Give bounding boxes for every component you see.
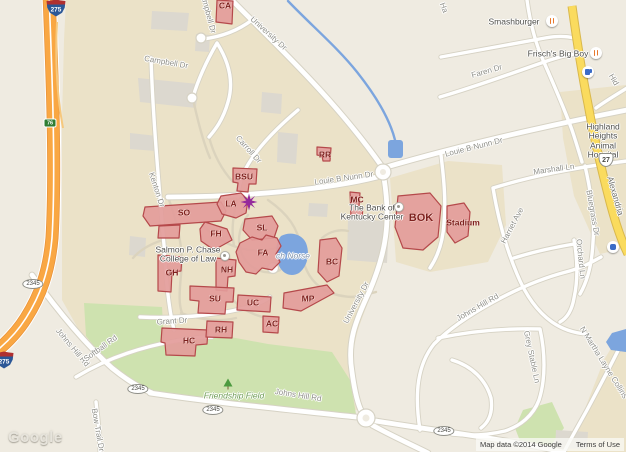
road-label-softball-rd: Softball Rd	[83, 334, 120, 364]
road-label-harriet-ave: Harriet Ave	[500, 207, 526, 246]
building-label-ac[interactable]: AC	[266, 319, 278, 328]
road-label-campbell-dr: Campbell Dr	[143, 55, 188, 71]
map-data-attribution: Map data ©2014 Google	[480, 440, 562, 449]
building-label-fa[interactable]: FA	[258, 248, 269, 257]
building-label-bc[interactable]: BC	[326, 257, 338, 266]
building-label-la[interactable]: LA	[225, 199, 236, 208]
poi-label-frisch-s-big-boy[interactable]: Frisch's Big Boy	[528, 49, 589, 58]
building-label-rh[interactable]: RH	[215, 325, 227, 334]
restaurant-icon[interactable]	[546, 15, 558, 27]
building-label-mp[interactable]: MP	[302, 294, 315, 303]
road-label-grant-dr: Grant Dr	[156, 317, 187, 328]
restaurant-icon[interactable]	[590, 47, 602, 59]
map-labels-layer: University DrCampbell DrCampbell DrCarro…	[0, 0, 626, 452]
road-label-hid: Hid	[606, 73, 620, 88]
building-label-nh[interactable]: NH	[221, 265, 233, 274]
road-label-carroll-dr: Carroll Dr	[233, 134, 262, 165]
dot-icon[interactable]	[394, 202, 404, 212]
road-label-alexandria: Alexandria	[605, 175, 625, 216]
building-label-stadium[interactable]: Stadium	[446, 218, 480, 227]
poi-label-smashburger[interactable]: Smashburger	[488, 17, 539, 26]
building-label-hc[interactable]: HC	[183, 336, 195, 345]
road-label-marshall-ln: Marshall Ln	[533, 163, 575, 177]
poi-icon[interactable]	[607, 241, 619, 253]
building-label-mc[interactable]: MC	[350, 195, 363, 204]
road-label-university-dr: University Dr	[342, 281, 371, 326]
road-label-louie-b-nunn-dr: Louie B Nunn Dr	[314, 171, 374, 188]
building-label-bsu[interactable]: BSU	[235, 172, 253, 181]
shield-interstate-275: 275	[47, 0, 66, 17]
shield-us-27: 27	[599, 153, 614, 167]
building-label-rr[interactable]: RR	[319, 150, 331, 159]
road-label-n-martha-layne-collins: N Martha Layne Collins	[577, 325, 626, 400]
road-label-faren-dr: Faren Dr	[471, 63, 504, 80]
road-label-orchard-ln: Orchard Ln	[574, 239, 587, 280]
shield-oval-2345: 2345	[202, 405, 223, 415]
building-label-gh[interactable]: GH	[166, 268, 179, 277]
building-label-su[interactable]: SU	[209, 294, 221, 303]
road-label-ha: Ha	[437, 2, 449, 15]
gas-icon[interactable]	[582, 66, 594, 78]
tree-icon	[224, 379, 233, 390]
road-label-bow-trail-dr: Bow Trail Dr	[89, 408, 105, 452]
road-label-campbell-dr: Campbell Dr	[197, 0, 217, 35]
road-label-johns-hill-rd: Johns Hill Rd	[274, 388, 322, 404]
shield-oval-2345: 2345	[127, 384, 148, 394]
water-label-ch-norse: ch Norse	[276, 251, 310, 260]
star-icon[interactable]	[241, 194, 258, 211]
road-label-johns-hill-rd: Johns Hill Rd	[53, 327, 90, 369]
building-label-bok[interactable]: BOK	[409, 212, 433, 224]
park-label-friendship-field[interactable]: Friendship Field	[204, 391, 264, 400]
road-label-louie-b-nunn-dr: Louie B Nunn Dr	[444, 137, 504, 160]
building-label-so[interactable]: SO	[178, 208, 190, 217]
shield-interstate-275: 275	[0, 352, 14, 369]
shield-oval-2345: 2345	[22, 279, 43, 289]
road-label-johns-hill-rd: Johns Hill Rd	[455, 292, 500, 323]
road-label-grey-stable-ln: Grey Stable Ln	[521, 330, 541, 384]
road-label-kenton-dr: Kenton Dr	[146, 172, 166, 209]
google-logo[interactable]: Google	[8, 429, 63, 446]
poi-label-salmon-p-chase-college-of-law[interactable]: Salmon P. Chase College of Law	[155, 246, 220, 265]
attribution-bar: Map data ©2014 Google Terms of Use	[476, 438, 624, 451]
building-label-uc[interactable]: UC	[247, 298, 259, 307]
map-viewport[interactable]: University DrCampbell DrCampbell DrCarro…	[0, 0, 626, 452]
road-label-bluegrass-dr: Bluegrass Dr	[584, 189, 601, 236]
dot-icon[interactable]	[220, 251, 230, 261]
shield-exit-76: 76	[44, 119, 57, 128]
terms-of-use-link[interactable]: Terms of Use	[576, 440, 620, 449]
building-label-fh[interactable]: FH	[210, 229, 221, 238]
road-label-university-dr: University Dr	[248, 15, 288, 52]
building-label-ca[interactable]: CA	[219, 1, 231, 10]
building-label-sl[interactable]: SL	[257, 223, 268, 232]
shield-oval-2345: 2345	[433, 426, 454, 436]
